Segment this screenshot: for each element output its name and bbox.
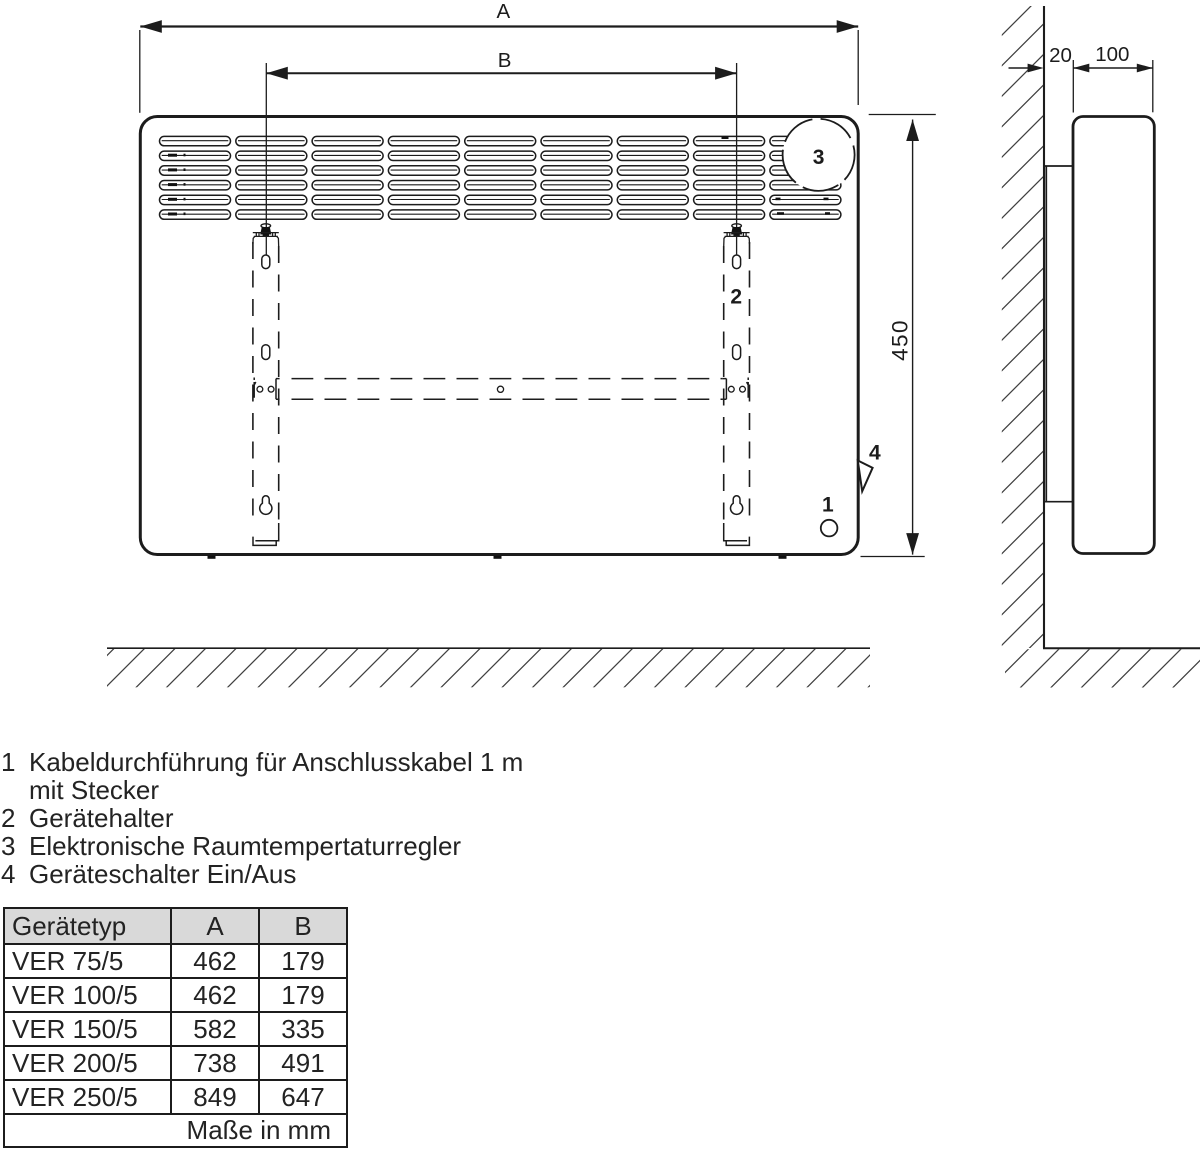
svg-text:A: A <box>496 0 510 23</box>
svg-text:4: 4 <box>869 441 881 464</box>
svg-text:100: 100 <box>1095 43 1129 66</box>
svg-text:B: B <box>498 49 512 72</box>
svg-text:20: 20 <box>1049 44 1072 67</box>
svg-text:2: 2 <box>730 285 742 308</box>
svg-text:450: 450 <box>888 319 913 361</box>
svg-text:3: 3 <box>813 146 825 169</box>
svg-text:1: 1 <box>822 494 834 517</box>
